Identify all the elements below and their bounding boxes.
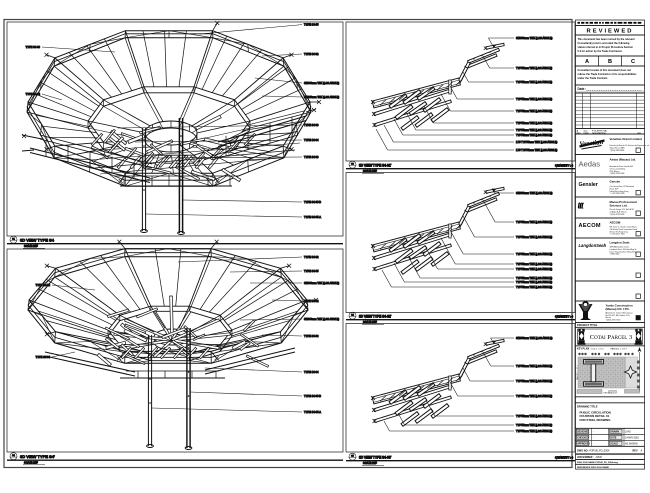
svg-text:SCALE 1:NF: SCALE 1:NF (363, 462, 377, 465)
svg-text:LangdonSeah: LangdonSeah (579, 243, 607, 248)
svg-text:DATE: DATE (610, 437, 617, 440)
svg-text:TYP75mm THK (L&S ANGLE): TYP75mm THK (L&S ANGLE) (516, 128, 552, 132)
svg-text:TYPE S4-02: TYPE S4-02 (304, 299, 319, 303)
svg-text:REV: REV (633, 449, 638, 452)
svg-text:L75 TYP75mm THK (L&S ANGLE): L75 TYP75mm THK (L&S ANGLE) (516, 140, 557, 144)
svg-text:TYPE S4-05: TYPE S4-05 (304, 23, 319, 27)
svg-text:SCALE 1:NF: SCALE 1:NF (24, 462, 38, 465)
svg-text:T 2830 3500: T 2830 3500 (610, 254, 620, 256)
svg-text:SHS60mm THK (L&S ANGLE): SHS60mm THK (L&S ANGLE) (304, 81, 339, 85)
svg-text:TYP75mm THK (L&S ANGLE): TYP75mm THK (L&S ANGLE) (516, 220, 552, 224)
svg-text:status referred to in Projec: status referred to in Project Procedure … (578, 46, 634, 49)
svg-text:5.4 for action by the Trade Co: 5.4 for action by the Trade Contractor. (578, 50, 623, 53)
svg-text:Date :: Date : (578, 87, 587, 91)
svg-text:SHS60mm THK (L&S ANGLE): SHS60mm THK (L&S ANGLE) (304, 281, 339, 285)
svg-text:SHS60mm THK (L&S ANGLE): SHS60mm THK (L&S ANGLE) (516, 191, 552, 195)
svg-text:TYPE S4-02: TYPE S4-02 (304, 52, 319, 56)
svg-text:TYPE S4-03: TYPE S4-03 (304, 155, 319, 159)
svg-text:TYPE S4-05-A: TYPE S4-05-A (304, 215, 321, 219)
svg-text:3D VIEW TYPE S4-02': 3D VIEW TYPE S4-02' (359, 315, 392, 319)
svg-text:3D VIEW TYPE S4: 3D VIEW TYPE S4 (20, 238, 55, 243)
svg-text:DWG NO :: DWG NO : (577, 449, 589, 452)
svg-text:TYPE S4-02: TYPE S4-02 (304, 255, 319, 259)
svg-text:3D VIEW TYPE S4-01': 3D VIEW TYPE S4-01' (359, 164, 392, 168)
svg-text:T (853) 2882 8888: T (853) 2882 8888 (610, 150, 625, 152)
svg-text:SCALE 1:2500: SCALE 1:2500 (591, 348, 605, 351)
svg-text:DATE: DATE (584, 132, 590, 135)
svg-text:PARCEL 1, OT 1: PARCEL 1, OT 1 (576, 364, 579, 380)
svg-text:TYP75mm THK (L&S ANGLE): TYP75mm THK (L&S ANGLE) (516, 285, 552, 289)
svg-text:DRAWING TITLE: DRAWING TITLE (577, 405, 598, 409)
svg-text:TYPE S4-04: TYPE S4-04 (304, 370, 319, 374)
svg-text:3D VIEW TYPE S4-03': 3D VIEW TYPE S4-03' (359, 456, 392, 460)
svg-text:P3PUB_FD_0504: P3PUB_FD_0504 (590, 449, 610, 452)
svg-text:PARCEL 2: PARCEL 2 (604, 392, 613, 395)
svg-text:AECOM: AECOM (610, 221, 621, 225)
svg-text:TYP75mm THK (L&S ANGLE): TYP75mm THK (L&S ANGLE) (516, 423, 552, 427)
svg-text:QUANTITY : 4: QUANTITY : 4 (555, 456, 573, 460)
svg-text:SHS60mm THK (L&S ANGLE): SHS60mm THK (L&S ANGLE) (516, 336, 552, 340)
svg-text:under the Trade Contract.: under the Trade Contract. (578, 77, 609, 80)
svg-text:TYP75mm THK (L&S ANGLE): TYP75mm THK (L&S ANGLE) (516, 121, 552, 125)
svg-text:TYPE S4-09: TYPE S4-09 (26, 45, 41, 49)
svg-text:TYP75mm THK (L&S ANGLE): TYP75mm THK (L&S ANGLE) (516, 109, 552, 113)
svg-text:Services Ltd.: Services Ltd. (610, 203, 628, 207)
svg-text:TYP75mm THK (L&S ANGLE): TYP75mm THK (L&S ANGLE) (516, 429, 552, 433)
svg-text:TYP75mm THK (L&S ANGLE): TYP75mm THK (L&S ANGLE) (516, 414, 552, 418)
svg-text:SHS60mm THK (L&S ANGLE): SHS60mm THK (L&S ANGLE) (516, 36, 552, 40)
svg-text:SCALE: SCALE (610, 443, 618, 446)
svg-text:TYP75mm THK (L&S ANGLE): TYP75mm THK (L&S ANGLE) (516, 267, 552, 271)
svg-text:Aedas (Macau) Ltd.: Aedas (Macau) Ltd. (610, 158, 637, 162)
svg-text:TYPE S4-02: TYPE S4-02 (36, 283, 51, 287)
svg-text:relieve the Trade Contractor o: relieve the Trade Contractor of its resp… (578, 73, 638, 76)
svg-text:T (853) 2875 3333: T (853) 2875 3333 (606, 319, 621, 321)
svg-text:TYP75mm THK (L&S ANGLE): TYP75mm THK (L&S ANGLE) (516, 262, 552, 266)
svg-text:LYAO: LYAO (625, 431, 631, 434)
svg-text:JOB NUMBER :: JOB NUMBER : (577, 457, 594, 459)
svg-text:TYP75mm THK (L&S ANGLE): TYP75mm THK (L&S ANGLE) (516, 235, 552, 239)
svg-text:TYP75mm THK (L&S ANGLE): TYP75mm THK (L&S ANGLE) (516, 66, 552, 70)
svg-text:Consultant review of this docu: Consultant review of this document does … (578, 69, 632, 72)
svg-text:QUANTITY : 4: QUANTITY : 4 (555, 315, 573, 319)
svg-text:SHS60mm THK (L&S ANGLE): SHS60mm THK (L&S ANGLE) (304, 95, 339, 99)
svg-text:DWG FILE NAME P3PUB_FD_0504.dw: DWG FILE NAME P3PUB_FD_0504.dwg (577, 461, 619, 464)
svg-text:CHECKED: CHECKED (577, 438, 589, 440)
svg-text:L75 TYP75mm THK (L&S ANGLE): L75 TYP75mm THK (L&S ANGLE) (516, 148, 557, 152)
svg-text:AECOM: AECOM (579, 223, 601, 229)
svg-text:C: C (631, 59, 635, 65)
svg-text:TYP75mm THK (L&S ANGLE): TYP75mm THK (L&S ANGLE) (516, 133, 552, 137)
svg-text:T (853) 2878 6288: T (853) 2878 6288 (610, 214, 625, 216)
svg-text:TYPE S4-03: TYPE S4-03 (304, 334, 319, 338)
svg-text:COTAI PARCEL 3: COTAI PARCEL 3 (590, 334, 633, 341)
svg-text:TYP75mm THK (L&S ANGLE): TYP75mm THK (L&S ANGLE) (516, 97, 552, 101)
svg-text:Venetian Orient Limited: Venetian Orient Limited (610, 137, 643, 141)
svg-text:TYPE S4-04: TYPE S4-04 (36, 355, 51, 359)
svg-text:T (853) 2833 3068: T (853) 2833 3068 (610, 173, 625, 175)
svg-text:TYPE S4-05-B: TYPE S4-05-B (304, 200, 321, 204)
svg-text:TYP75mm THK (L&S ANGLE): TYP75mm THK (L&S ANGLE) (516, 394, 552, 398)
svg-text:APPROVED: APPROVED (577, 443, 590, 446)
svg-text:TYP75mm THK (L&S ANGLE): TYP75mm THK (L&S ANGLE) (516, 80, 552, 84)
svg-text:A: A (585, 59, 589, 65)
svg-text:B: B (608, 59, 612, 65)
svg-text:Consultant(s) and is accorded: Consultant(s) and is accorded the follow… (578, 42, 630, 45)
svg-text:TYPE S4-02: TYPE S4-02 (26, 92, 41, 96)
svg-text:AS SHOWN: AS SHOWN (625, 443, 638, 446)
svg-text:REFERENCE DWG FILE NAME: REFERENCE DWG FILE NAME (577, 466, 609, 469)
svg-text:TYPE S4-03: TYPE S4-03 (304, 123, 319, 127)
svg-text:TYP75mm THK (L&S ANGLE): TYP75mm THK (L&S ANGLE) (516, 379, 552, 383)
svg-text:TYPE S4-05: TYPE S4-05 (304, 269, 319, 273)
svg-text:TYP75mm THK (L&S ANGLE): TYP75mm THK (L&S ANGLE) (516, 280, 552, 284)
svg-text:TYPE S4-05-A: TYPE S4-05-A (304, 410, 321, 414)
svg-text:T + 852 2317 7600: T + 852 2317 7600 (610, 234, 625, 236)
svg-text:Gensler: Gensler (610, 180, 622, 184)
svg-text:Aedas: Aedas (579, 160, 601, 169)
svg-text:KEY PLAN: KEY PLAN (577, 348, 589, 351)
svg-text:TYPE S4-05-B: TYPE S4-05-B (304, 394, 321, 398)
svg-text:14-MAY-2015: 14-MAY-2015 (625, 437, 640, 440)
svg-text:SCALE 1:NF: SCALE 1:NF (24, 245, 38, 248)
svg-text:Gensler: Gensler (579, 182, 598, 188)
svg-text:Langdon Seah: Langdon Seah (610, 241, 630, 245)
svg-text:DESIGNED: DESIGNED (577, 432, 589, 434)
svg-text:TYPE S4-04: TYPE S4-04 (304, 138, 319, 142)
svg-text:DRAWN: DRAWN (610, 431, 619, 434)
svg-text:FOR STEEL DRAWING: FOR STEEL DRAWING (580, 418, 612, 422)
svg-text:(Macau) CO. LTD.: (Macau) CO. LTD. (606, 307, 630, 311)
svg-text:TYP75mm THK (L&S ANGLE): TYP75mm THK (L&S ANGLE) (516, 364, 552, 368)
svg-text:T + 852 2810 8399: T + 852 2810 8399 (610, 193, 625, 195)
svg-text:PROJECT TITLE: PROJECT TITLE (577, 323, 597, 327)
svg-text:QUANTITY : 4: QUANTITY : 4 (555, 164, 573, 168)
svg-text:TYP75mm THK (L&S ANGLE): TYP75mm THK (L&S ANGLE) (516, 252, 552, 256)
svg-text:REVIEWED: REVIEWED (587, 29, 634, 35)
svg-text:This document has been revised: This document has been revised by the re… (578, 38, 635, 41)
svg-text:TYP75mm THK (L&S ANGLE): TYP75mm THK (L&S ANGLE) (516, 276, 552, 280)
svg-text:PARCEL 1, OT 2: PARCEL 1, OT 2 (611, 348, 628, 351)
svg-text:3D VIEW TYPE S4': 3D VIEW TYPE S4' (20, 454, 55, 459)
svg-text:SHS60mm THK (L&S ANGLE): SHS60mm THK (L&S ANGLE) (304, 317, 339, 321)
svg-text:31520: 31520 (596, 457, 603, 459)
